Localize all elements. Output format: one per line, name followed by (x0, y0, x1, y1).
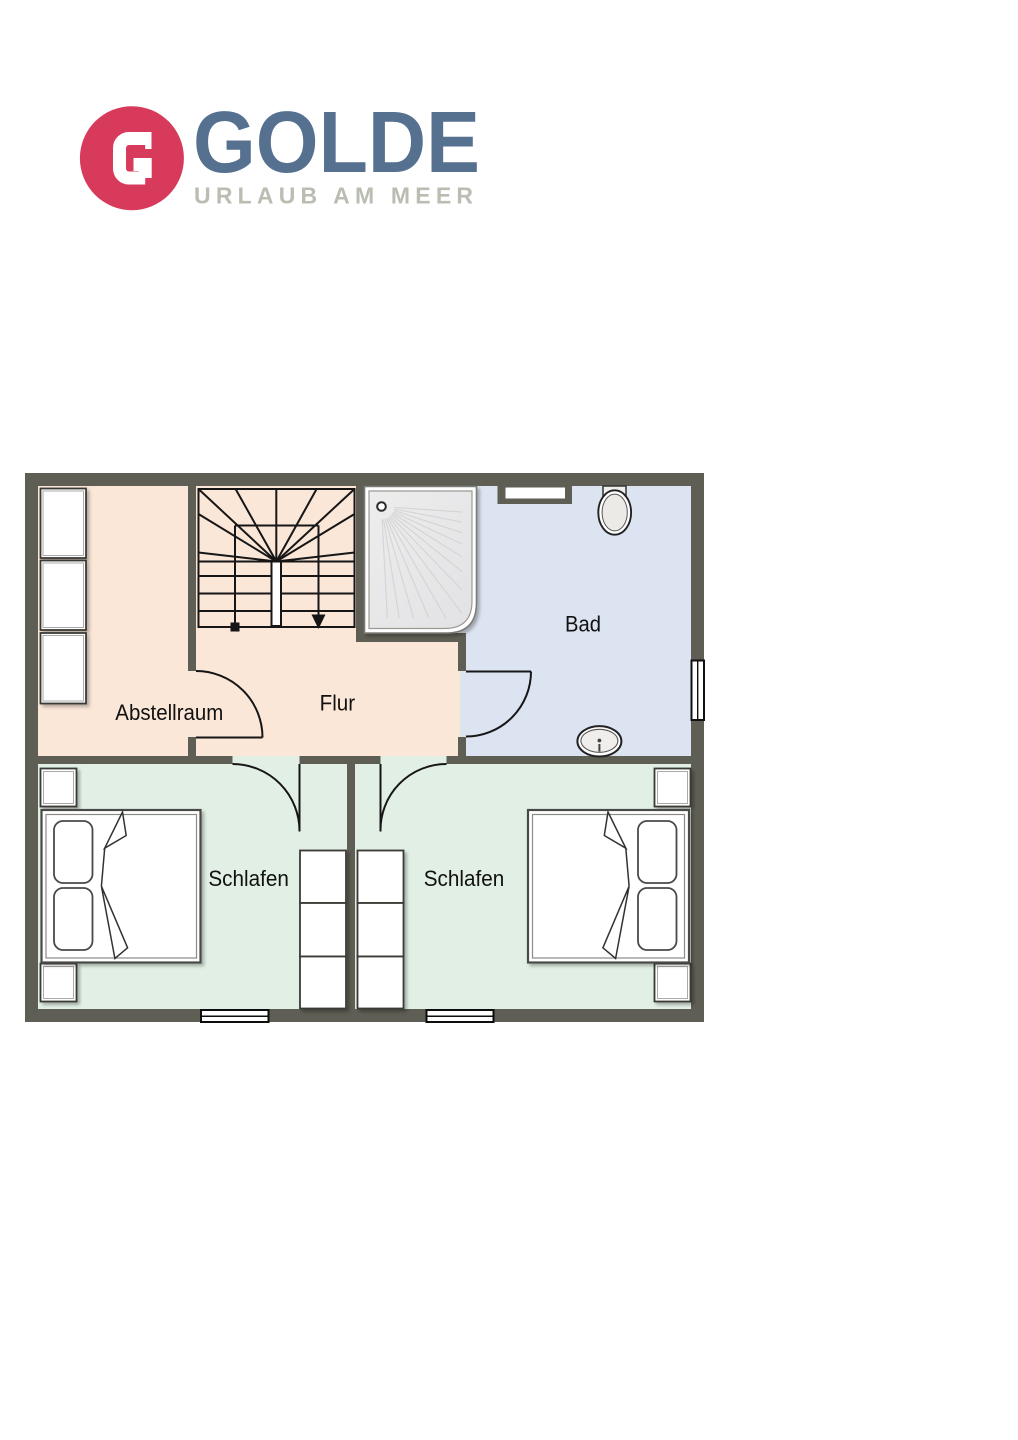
svg-text:Schlafen: Schlafen (208, 866, 289, 891)
svg-text:Bad: Bad (565, 612, 601, 637)
svg-text:Schlafen: Schlafen (424, 866, 505, 891)
svg-text:Flur: Flur (320, 691, 356, 716)
svg-text:GOLDE: GOLDE (193, 94, 480, 191)
svg-text:Abstellraum: Abstellraum (115, 700, 223, 725)
